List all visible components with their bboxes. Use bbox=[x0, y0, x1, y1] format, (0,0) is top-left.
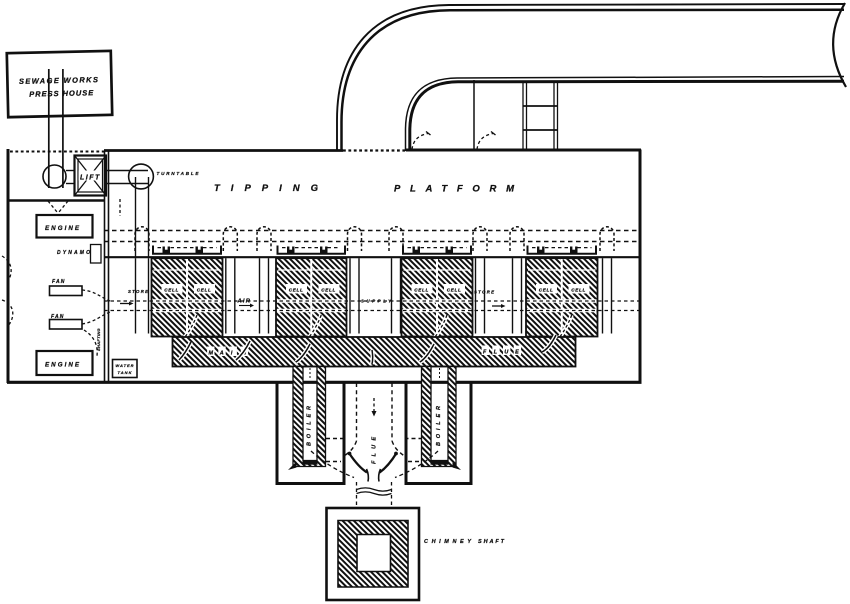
svg-text:SHAFT: SHAFT bbox=[478, 539, 505, 545]
svg-text:BOILER: BOILER bbox=[436, 406, 442, 446]
svg-text:PRESS HOUSE: PRESS HOUSE bbox=[29, 88, 94, 98]
svg-text:TANK: TANK bbox=[118, 370, 133, 375]
svg-text:TIPPING: TIPPING bbox=[214, 183, 319, 194]
svg-text:STORE: STORE bbox=[128, 289, 148, 294]
svg-text:FLUE: FLUE bbox=[372, 437, 378, 464]
svg-text:WATER: WATER bbox=[116, 363, 134, 368]
svg-text:ENGINE: ENGINE bbox=[45, 362, 80, 369]
svg-text:U: U bbox=[504, 350, 508, 356]
svg-text:BOILER: BOILER bbox=[307, 406, 313, 446]
svg-text:STORE: STORE bbox=[474, 290, 494, 295]
svg-text:CELL: CELL bbox=[414, 288, 429, 293]
svg-text:CELL: CELL bbox=[197, 288, 212, 293]
svg-text:DYNAMO: DYNAMO bbox=[57, 250, 90, 256]
svg-text:M: M bbox=[209, 351, 214, 357]
svg-text:CELL: CELL bbox=[164, 288, 179, 293]
svg-text:CELL: CELL bbox=[289, 288, 304, 293]
svg-text:CELL: CELL bbox=[447, 288, 462, 293]
svg-text:CELL: CELL bbox=[539, 288, 554, 293]
svg-text:PLATFORM: PLATFORM bbox=[394, 184, 515, 195]
svg-text:CELL: CELL bbox=[571, 288, 586, 293]
svg-text:LIFT: LIFT bbox=[80, 175, 101, 182]
svg-text:E: E bbox=[515, 350, 519, 356]
svg-text:ENGINE: ENGINE bbox=[45, 225, 80, 232]
svg-text:A: A bbox=[219, 351, 224, 357]
svg-text:L: L bbox=[494, 350, 497, 356]
svg-text:FAN: FAN bbox=[52, 279, 66, 285]
svg-text:TURNTABLE: TURNTABLE bbox=[157, 171, 200, 176]
svg-text:CELL: CELL bbox=[321, 288, 336, 293]
svg-text:CHIMNEY: CHIMNEY bbox=[424, 539, 472, 545]
